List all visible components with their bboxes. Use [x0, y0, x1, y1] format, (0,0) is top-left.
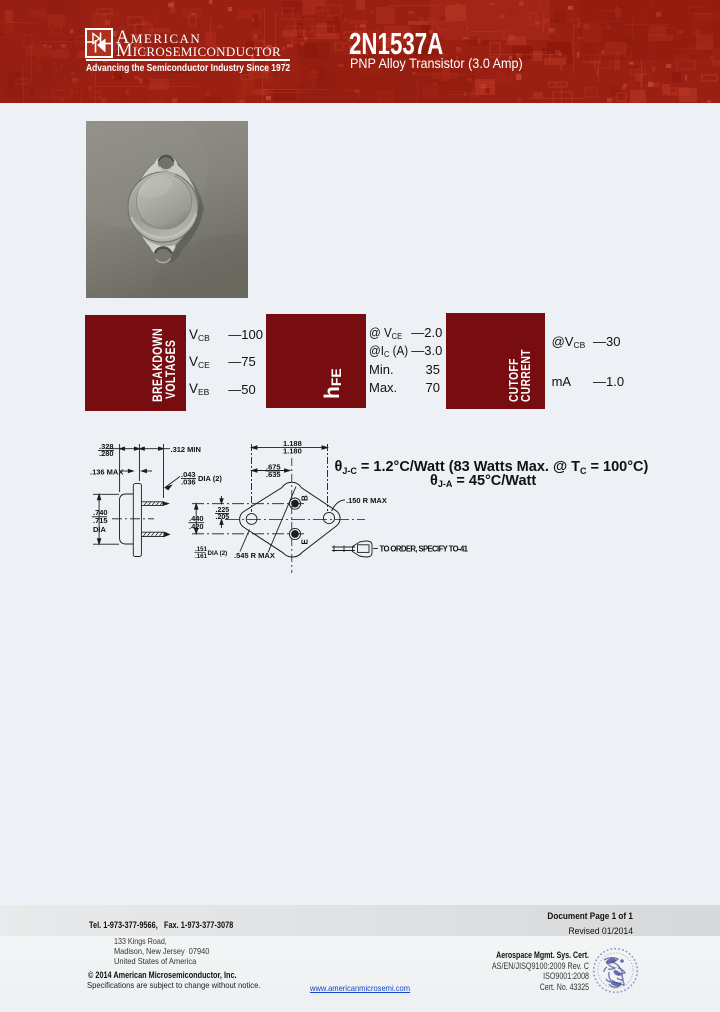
svg-text:.545 R MAX: .545 R MAX [234, 551, 275, 560]
svg-text:.161: .161 [195, 553, 208, 560]
svg-text:B: B [301, 495, 310, 501]
svg-text:.150 R MAX: .150 R MAX [346, 496, 387, 505]
svg-text:1.180: 1.180 [283, 447, 302, 456]
svg-text:.420: .420 [189, 522, 204, 531]
svg-text:E: E [301, 539, 310, 545]
svg-text:TO ORDER, SPECIFY TO-41: TO ORDER, SPECIFY TO-41 [380, 545, 469, 554]
svg-text:.312 MIN: .312 MIN [171, 445, 201, 454]
svg-text:.715: .715 [93, 516, 108, 525]
svg-text:.136 MAX: .136 MAX [90, 468, 123, 477]
svg-text:DIA (2): DIA (2) [208, 550, 228, 557]
svg-text:DIA: DIA [93, 525, 107, 534]
svg-text:.205: .205 [216, 514, 230, 521]
svg-text:DIA (2): DIA (2) [198, 474, 222, 483]
svg-text:.225: .225 [216, 507, 230, 514]
